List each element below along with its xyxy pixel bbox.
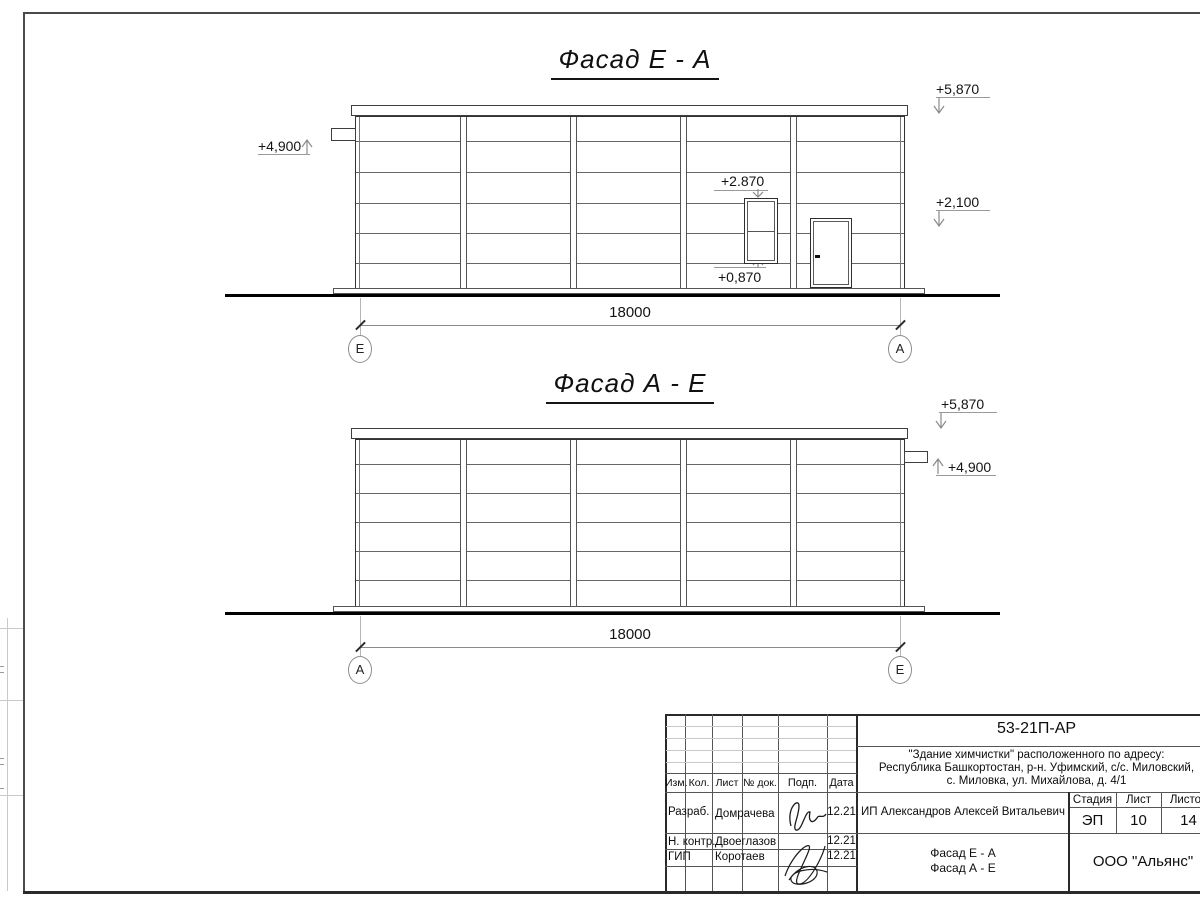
row-name: Домрачева [715, 808, 775, 820]
siding-line [356, 172, 904, 173]
stage-label: Стадия [1069, 794, 1116, 806]
row-name: Двоеглазов [715, 836, 776, 848]
stage-value: ЭП [1069, 812, 1116, 829]
wall-edge-line [900, 440, 901, 606]
row-role: ГИП [668, 851, 691, 863]
client-name: ИП Александров Алексей Витальевич [858, 806, 1068, 818]
sheet-title-line1: Фасад Е - А [858, 846, 1068, 860]
level-arrow-up-icon [300, 138, 314, 155]
signature-domracheva [783, 794, 829, 834]
project-address-line3: с. Миловка, ул. Михайлова, д. 4/1 [857, 775, 1200, 787]
level-arrow-down-icon [934, 412, 948, 430]
col-list-label: Лист [712, 777, 742, 789]
col-kol-label: Кол. [686, 777, 712, 789]
elevation-shelf [714, 267, 766, 268]
sheets-value: 14 [1161, 812, 1200, 829]
titleblock-hline [857, 746, 1200, 747]
dimension-label: 18000 [570, 304, 690, 321]
project-address-line2: Республика Башкортостан, р-н. Уфимский, … [857, 762, 1200, 774]
margin-mark [0, 788, 4, 789]
level-arrow-up-icon [931, 457, 945, 475]
extension-line [360, 298, 361, 336]
axis-marker-right: Е [888, 656, 912, 684]
sheet-value: 10 [1116, 812, 1161, 829]
facade-1-door [810, 218, 852, 288]
titleblock-vline [712, 714, 713, 891]
facade-1-window [744, 198, 778, 264]
elevation-shelf [936, 475, 996, 476]
elevation-mark-4900: +4,900 [948, 459, 991, 475]
level-arrow-down-icon [932, 97, 946, 115]
dimension-line [360, 325, 900, 326]
column-line [460, 440, 467, 606]
facade-2-title-text: Фасад А - Е [546, 368, 715, 404]
drawing-sheet: Фасад Е - А +4,900 +5,870 +2,100 +2.870 [0, 0, 1200, 900]
dimension-line [360, 647, 900, 648]
signature-kontr-gip [779, 832, 831, 888]
facade-2-title: Фасад А - Е [465, 368, 795, 404]
sheet-label: Лист [1116, 794, 1161, 806]
siding-line [356, 464, 904, 465]
revision-row-line [666, 726, 856, 727]
revision-row-line [666, 738, 856, 739]
column-line [570, 117, 577, 288]
door-handle [815, 255, 820, 258]
margin-divider [0, 700, 23, 701]
col-podp-label: Подп. [778, 777, 827, 789]
wall-edge-line [359, 440, 360, 606]
margin-mark [0, 758, 4, 759]
siding-line [356, 551, 904, 552]
column-line [460, 117, 467, 288]
margin-divider [0, 795, 23, 796]
extension-line [900, 616, 901, 656]
frame-top-line [23, 12, 1200, 14]
facade-2-roof-band [351, 428, 908, 439]
titleblock-vline [742, 714, 743, 891]
elevation-mark-4900: +4,900 [258, 138, 301, 154]
row-role: Разраб. [668, 806, 709, 818]
project-address-line1: "Здание химчистки" расположенного по адр… [857, 749, 1200, 761]
column-line [790, 440, 797, 606]
titleblock-vline [1068, 792, 1070, 891]
company-name: ООО "Альянс" [1070, 853, 1200, 870]
margin-divider [0, 628, 23, 629]
elevation-mark-2100: +2,100 [936, 194, 979, 210]
revision-row-line [666, 750, 856, 751]
siding-line [356, 141, 904, 142]
sheets-label: Листов [1161, 794, 1200, 806]
extension-line [900, 298, 901, 336]
facade-1-pipe [331, 128, 356, 141]
sheet-title-line2: Фасад А - Е [858, 861, 1068, 875]
row-date: 12.21 [827, 835, 856, 847]
elevation-mark-0870: +0,870 [718, 269, 761, 285]
column-line [570, 440, 577, 606]
elevation-mark-5870: +5,870 [936, 81, 979, 97]
extension-line [360, 616, 361, 656]
level-arrow-down-icon [932, 210, 946, 228]
margin-mark [0, 666, 4, 667]
siding-line [356, 493, 904, 494]
elevation-mark-2870: +2.870 [721, 173, 764, 189]
facade-2-wall [355, 439, 905, 607]
col-ndok-label: № док. [742, 777, 778, 789]
frame-left-line [23, 12, 25, 894]
titleblock-top-border [665, 714, 1200, 716]
facade-2-ground-line [225, 612, 1000, 615]
wall-edge-line [900, 117, 901, 288]
facade-1-title-text: Фасад Е - А [551, 44, 720, 80]
column-line [680, 117, 687, 288]
axis-marker-left: А [348, 656, 372, 684]
siding-line [356, 580, 904, 581]
facade-1-title: Фасад Е - А [470, 44, 800, 80]
margin-column-line [7, 618, 8, 891]
doc-code: 53-21П-АР [857, 720, 1200, 738]
elevation-mark-5870: +5,870 [941, 396, 984, 412]
titleblock-hline [1068, 807, 1200, 808]
margin-mark [0, 764, 4, 765]
axis-marker-left: Е [348, 335, 372, 363]
row-name: Коротаев [715, 851, 765, 863]
col-data-label: Дата [827, 777, 856, 789]
column-line [680, 440, 687, 606]
facade-1-ground-line [225, 294, 1000, 297]
titleblock-vline [685, 714, 686, 891]
facade-2-pipe [904, 451, 928, 463]
column-line [790, 117, 797, 288]
door-leaf [813, 221, 849, 285]
wall-edge-line [359, 117, 360, 288]
axis-marker-right: А [888, 335, 912, 363]
revision-row-line [666, 762, 856, 763]
frame-bottom-line [23, 891, 1200, 894]
siding-line [356, 203, 904, 204]
titleblock-left-border [665, 714, 667, 891]
facade-1-roof-band [351, 105, 908, 116]
col-izm-label: Изм. [665, 777, 686, 789]
titleblock-hline [665, 792, 1200, 793]
dimension-label: 18000 [570, 626, 690, 643]
row-date: 12.21 [827, 806, 856, 818]
window-mullion [747, 231, 775, 232]
row-role: Н. контр. [668, 836, 715, 848]
margin-mark [0, 672, 4, 673]
titleblock-hline [665, 833, 1200, 834]
siding-line [356, 522, 904, 523]
row-date: 12.21 [827, 850, 856, 862]
titleblock-hline [665, 773, 857, 774]
